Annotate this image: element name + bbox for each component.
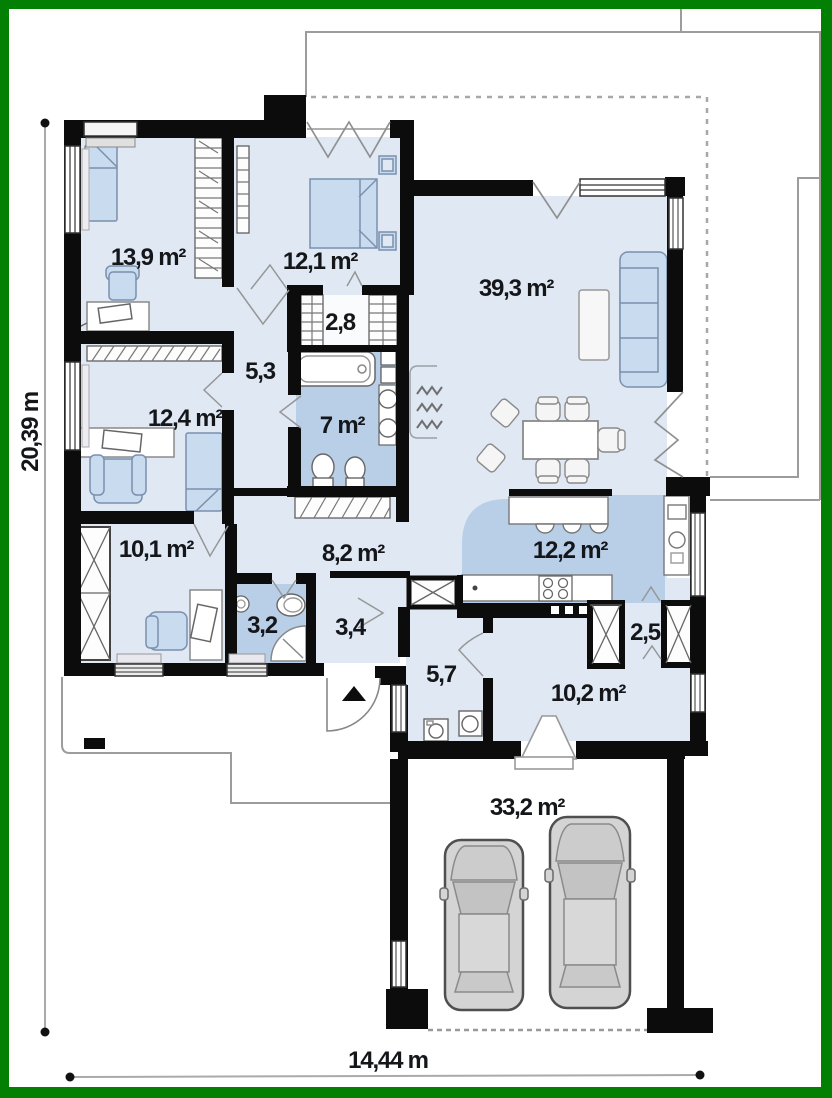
svg-text:39,3 m²: 39,3 m² — [479, 275, 555, 302]
svg-text:14,44 m: 14,44 m — [348, 1047, 428, 1074]
svg-text:5,3: 5,3 — [245, 358, 276, 385]
svg-text:12,2 m²: 12,2 m² — [533, 537, 609, 564]
svg-text:10,1 m²: 10,1 m² — [119, 536, 195, 563]
svg-text:8,2 m²: 8,2 m² — [322, 540, 385, 567]
svg-text:7 m²: 7 m² — [320, 412, 366, 439]
svg-text:2,8: 2,8 — [325, 309, 356, 336]
svg-text:2,5: 2,5 — [630, 619, 661, 646]
svg-text:3,2: 3,2 — [247, 612, 278, 639]
svg-text:10,2 m²: 10,2 m² — [551, 680, 627, 707]
svg-text:3,4: 3,4 — [335, 614, 367, 641]
svg-text:20,39 m: 20,39 m — [17, 392, 44, 472]
svg-text:12,4 m²: 12,4 m² — [148, 405, 224, 432]
svg-text:5,7: 5,7 — [426, 661, 457, 688]
svg-text:13,9 m²: 13,9 m² — [111, 244, 187, 271]
svg-text:33,2 m²: 33,2 m² — [490, 794, 566, 821]
svg-text:12,1 m²: 12,1 m² — [283, 248, 359, 275]
